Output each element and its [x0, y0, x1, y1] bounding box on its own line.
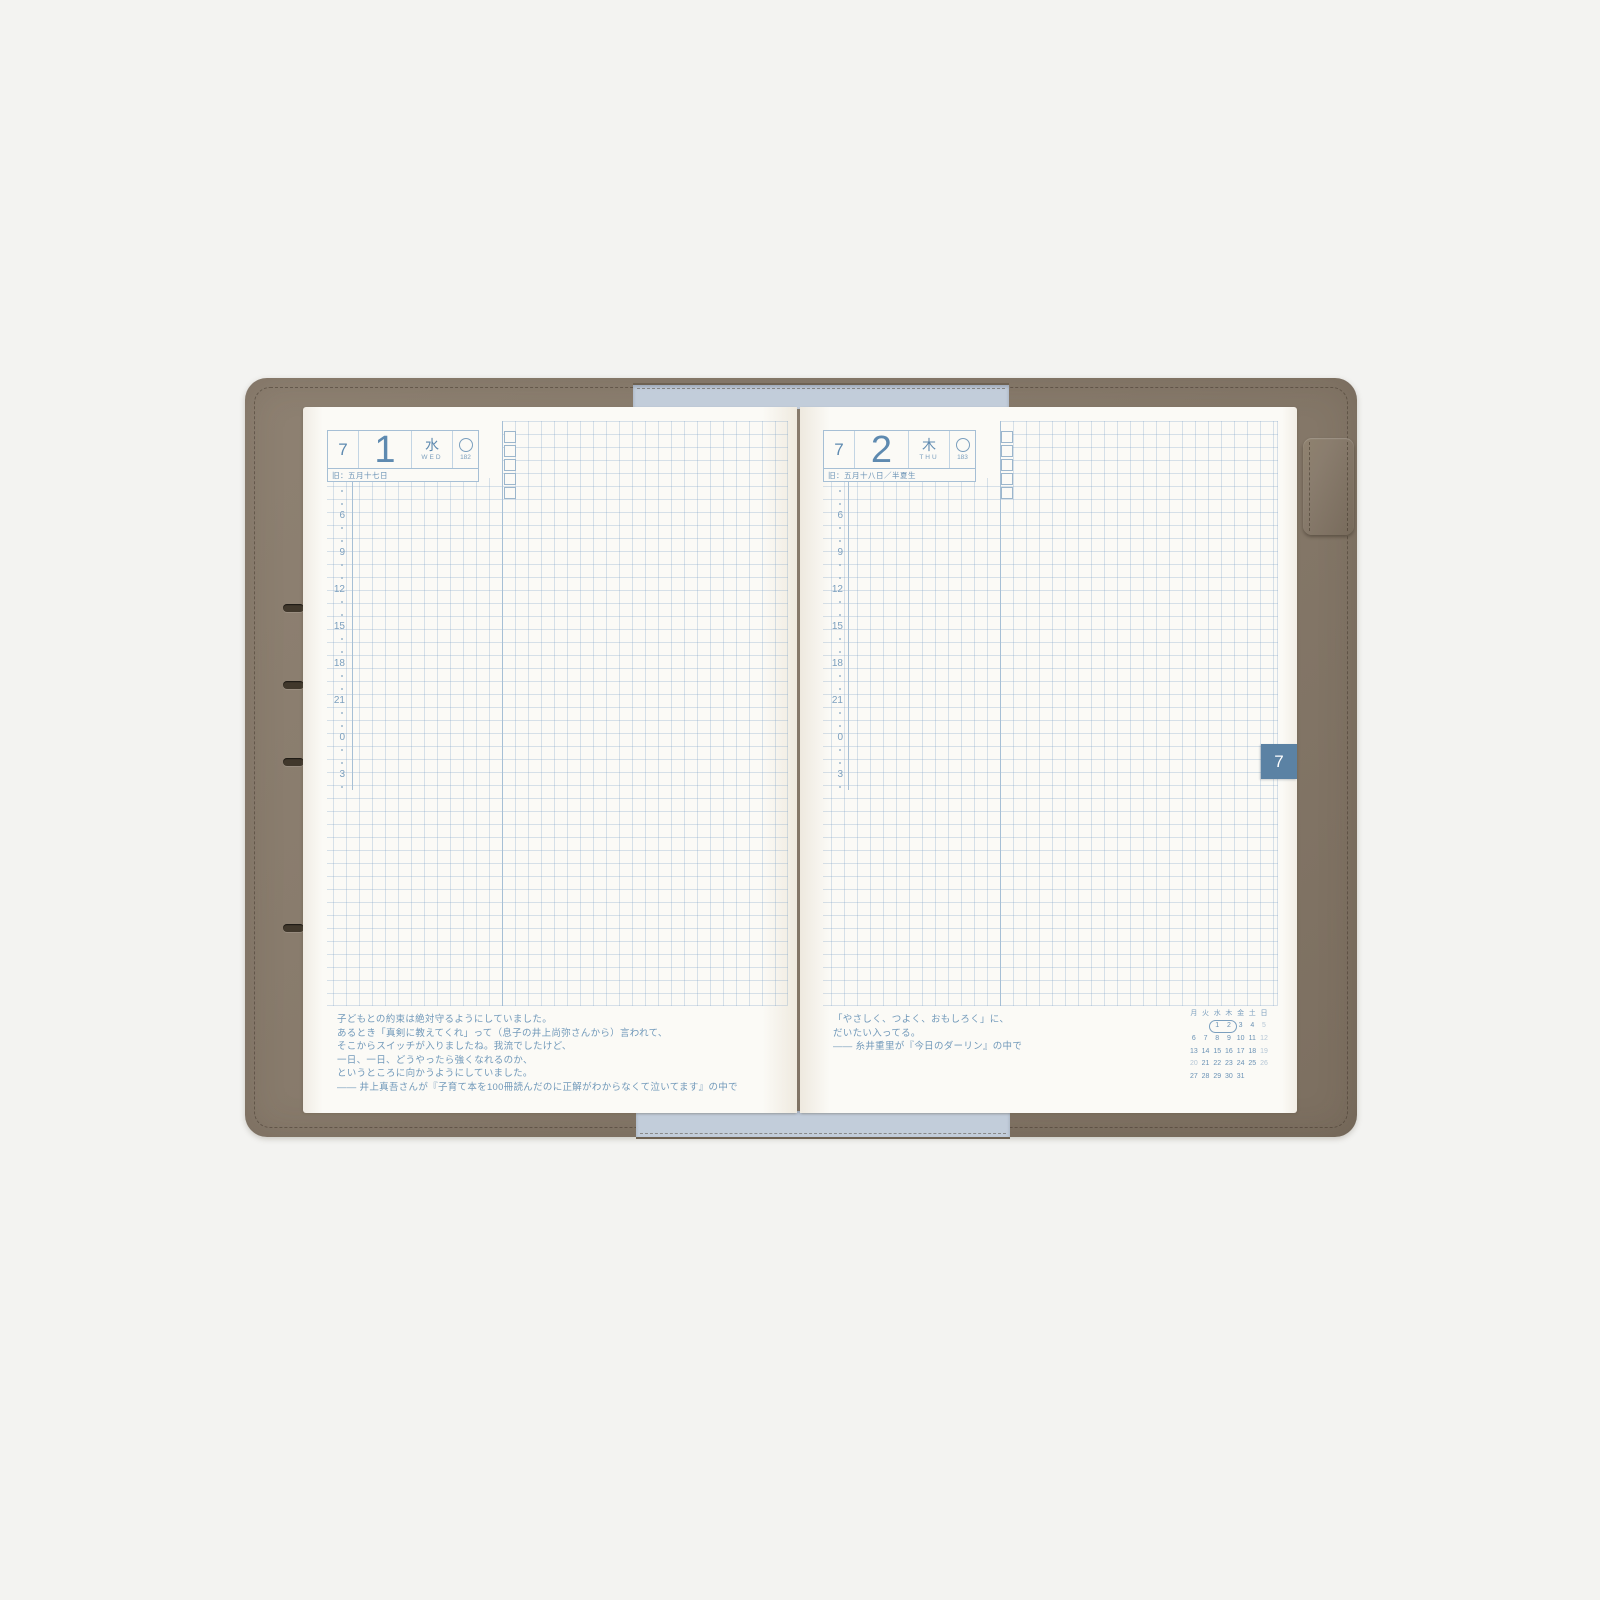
timeline-hour-dot	[341, 503, 343, 505]
weekday-abbr: THU	[919, 454, 938, 461]
calendar-day-header: 日	[1258, 1007, 1270, 1020]
cover-slot	[283, 604, 304, 612]
page-divider-line	[1000, 421, 1001, 1005]
weekday-abbr: WED	[421, 454, 442, 461]
lunar-date: 旧：五月十八日／半夏生	[824, 468, 975, 481]
calendar-day: 5	[1258, 1020, 1270, 1033]
timeline-hour-dot	[839, 762, 841, 764]
calendar-day: 30	[1223, 1070, 1235, 1083]
timeline-hour-dot	[341, 577, 343, 579]
task-checkbox	[1001, 487, 1013, 499]
calendar-day: 25	[1246, 1057, 1258, 1070]
timeline-hour-label: 3	[821, 769, 843, 780]
timeline-hour-dot	[839, 614, 841, 616]
timeline-hour-label: 21	[821, 695, 843, 706]
timeline-hour-dot	[839, 725, 841, 727]
timeline-hour-dot	[839, 503, 841, 505]
timeline-hour-dot	[341, 725, 343, 727]
lunar-date: 旧：五月十七日	[328, 468, 478, 481]
moon-cell: 183	[949, 431, 975, 468]
timeline-axis	[352, 478, 353, 790]
calendar-day: 10	[1235, 1032, 1247, 1045]
timeline-hour-label: 21	[323, 695, 345, 706]
day-of-year: 182	[460, 454, 471, 461]
calendar-day: 4	[1246, 1020, 1258, 1033]
timeline-hour-label: 12	[323, 584, 345, 595]
timeline-hour-label: 15	[323, 621, 345, 632]
task-checkbox	[504, 431, 516, 443]
calendar-day-header: 月	[1188, 1007, 1200, 1020]
mini-month-calendar: 月火水木金土日123456789101112131415161718192021…	[1188, 1007, 1270, 1083]
task-checkbox	[1001, 431, 1013, 443]
timeline-hour-label: 0	[821, 732, 843, 743]
calendar-day: 19	[1258, 1045, 1270, 1058]
calendar-day: 31	[1235, 1070, 1247, 1083]
calendar-day: 29	[1211, 1070, 1223, 1083]
timeline-hour-dot	[341, 688, 343, 690]
daily-quote: 「やさしく、つよく、おもしろく」に、だいたい入ってる。―― 糸井重里が『今日のダ…	[833, 1013, 1022, 1054]
calendar-day: 12	[1258, 1032, 1270, 1045]
timeline-hour-dot	[839, 688, 841, 690]
planner-page-july-1: 7 1 水 WED 182 旧：五月十七日 691215182103 子どもとの…	[303, 407, 797, 1113]
quote-line: だいたい入ってる。	[833, 1027, 1022, 1041]
cover-slot	[283, 681, 304, 689]
grid-area	[502, 421, 788, 1006]
timeline-hour-label: 6	[821, 510, 843, 521]
calendar-day: 20	[1188, 1057, 1200, 1070]
timeline-hour-label: 15	[821, 621, 843, 632]
date-header: 7 2 木 THU 183 旧：五月十八日／半夏生	[823, 430, 976, 482]
timeline-hour-dot	[341, 651, 343, 653]
planner-page-july-2: 7 2 木 THU 183 旧：五月十八日／半夏生 691215182103 「…	[800, 407, 1297, 1113]
grid-area	[823, 478, 1001, 1006]
day-of-year: 183	[957, 454, 968, 461]
calendar-day: 6	[1188, 1032, 1200, 1045]
timeline-axis	[848, 478, 849, 790]
task-checkbox	[1001, 473, 1013, 485]
calendar-day	[1246, 1070, 1258, 1083]
day-number: 2	[854, 431, 908, 468]
weekday-cell: 木 THU	[908, 431, 949, 468]
timeline-hour-dot	[341, 614, 343, 616]
timeline-hour-label: 18	[323, 658, 345, 669]
weekday-kanji: 木	[922, 438, 936, 452]
quote-line: そこからスイッチが入りましたね。我流でしたけど、	[337, 1040, 738, 1054]
timeline-hour-dot	[341, 540, 343, 542]
timeline-hour-dot	[839, 577, 841, 579]
calendar-day: 27	[1188, 1070, 1200, 1083]
calendar-day	[1258, 1070, 1270, 1083]
task-checkbox	[1001, 445, 1013, 457]
task-checkbox-column	[1001, 431, 1013, 499]
calendar-day: 8	[1211, 1032, 1223, 1045]
quote-line: 「やさしく、つよく、おもしろく」に、	[833, 1013, 1022, 1027]
cover-slot	[283, 758, 304, 766]
quote-line: 子どもとの約束は絶対守るようにしていました。	[337, 1013, 738, 1027]
month-number: 7	[328, 431, 358, 468]
quote-line: 一日、一日、どうやったら強くなれるのか、	[337, 1054, 738, 1068]
cover-lining-top	[633, 383, 1009, 409]
month-number: 7	[824, 431, 854, 468]
calendar-day: 24	[1235, 1057, 1247, 1070]
cover-slot	[283, 924, 304, 932]
planner-product-photo: 7 1 水 WED 182 旧：五月十七日 691215182103 子どもとの…	[0, 0, 1600, 1600]
calendar-day: 14	[1200, 1045, 1212, 1058]
task-checkbox	[504, 473, 516, 485]
calendar-day: 17	[1235, 1045, 1247, 1058]
date-header: 7 1 水 WED 182 旧：五月十七日	[327, 430, 479, 482]
timeline-hour-dot	[341, 762, 343, 764]
calendar-day: 13	[1188, 1045, 1200, 1058]
task-checkbox-column	[504, 431, 516, 499]
calendar-day: 7	[1200, 1032, 1212, 1045]
moon-phase-icon	[459, 438, 473, 452]
pen-loop	[1303, 438, 1354, 535]
calendar-day: 15	[1211, 1045, 1223, 1058]
calendar-day: 28	[1200, 1070, 1212, 1083]
calendar-day: 18	[1246, 1045, 1258, 1058]
day-number: 1	[358, 431, 411, 468]
timeline-hour-label: 18	[821, 658, 843, 669]
quote-line: というところに向かうようにしていました。	[337, 1067, 738, 1081]
task-checkbox	[504, 487, 516, 499]
weekday-kanji: 水	[425, 438, 439, 452]
calendar-day-header: 土	[1246, 1007, 1258, 1020]
calendar-day: 22	[1211, 1057, 1223, 1070]
timeline-hour-dot	[839, 540, 841, 542]
daily-quote: 子どもとの約束は絶対守るようにしていました。あるとき「真剣に教えてくれ」って（息…	[337, 1013, 738, 1095]
timeline-hour-label: 6	[323, 510, 345, 521]
timeline-hour-label: 0	[323, 732, 345, 743]
task-checkbox	[504, 445, 516, 457]
moon-cell: 182	[452, 431, 478, 468]
timeline-hour-label: 9	[323, 547, 345, 558]
calendar-day-header: 金	[1235, 1007, 1247, 1020]
calendar-day	[1188, 1020, 1200, 1033]
calendar-day-header: 水	[1211, 1007, 1223, 1020]
task-checkbox	[1001, 459, 1013, 471]
grid-area	[327, 478, 503, 1006]
calendar-day-header: 木	[1223, 1007, 1235, 1020]
timeline-hour-dot	[839, 651, 841, 653]
page-divider-line	[502, 421, 503, 1005]
timeline-hour-label: 3	[323, 769, 345, 780]
moon-phase-icon	[956, 438, 970, 452]
calendar-day: 9	[1223, 1032, 1235, 1045]
calendar-day: 23	[1223, 1057, 1235, 1070]
grid-area	[1000, 421, 1278, 1006]
month-index-tab: 7	[1261, 744, 1297, 779]
calendar-day-header: 火	[1200, 1007, 1212, 1020]
timeline-hour-label: 9	[821, 547, 843, 558]
timeline-hour-label: 12	[821, 584, 843, 595]
weekday-cell: 水 WED	[411, 431, 452, 468]
calendar-day: 11	[1246, 1032, 1258, 1045]
quote-line: ―― 糸井重里が『今日のダーリン』の中で	[833, 1040, 1022, 1054]
quote-line: ―― 井上真吾さんが『子育て本を100冊読んだのに正解がわからなくて泣いてます』…	[337, 1081, 738, 1095]
cover-lining-bottom	[636, 1111, 1010, 1139]
calendar-current-days-highlight	[1209, 1020, 1236, 1033]
calendar-day: 21	[1200, 1057, 1212, 1070]
calendar-day: 26	[1258, 1057, 1270, 1070]
calendar-day: 16	[1223, 1045, 1235, 1058]
quote-line: あるとき「真剣に教えてくれ」って（息子の井上尚弥さんから）言われて、	[337, 1027, 738, 1041]
task-checkbox	[504, 459, 516, 471]
